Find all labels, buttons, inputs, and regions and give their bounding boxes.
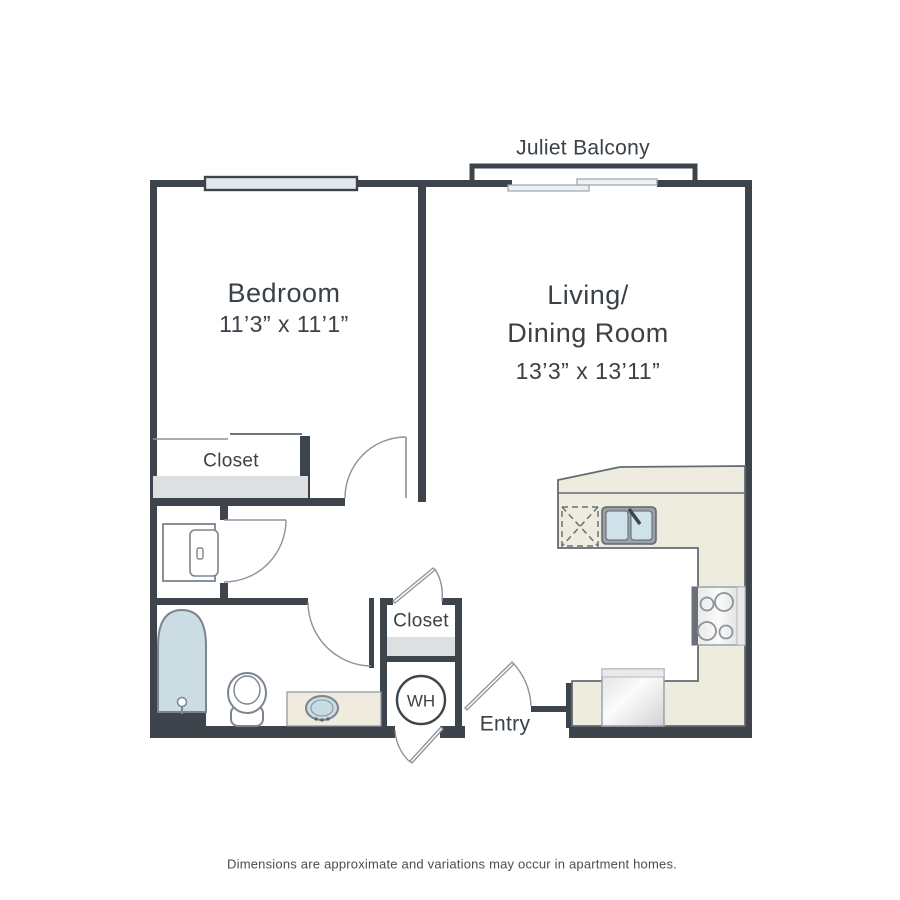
bedroom-door-arc <box>345 437 406 498</box>
hall-closet-door <box>393 568 442 603</box>
wall-bottom-wh <box>440 726 465 738</box>
floor-plan-page: Juliet Balcony Bedroom 11’3” x 11’1” Liv… <box>0 0 900 900</box>
wall-closet-wh-divider <box>387 656 455 662</box>
wall-hall-closet-right <box>455 598 462 726</box>
washer-dryer-drum <box>190 530 218 576</box>
bathroom-door-arc <box>308 602 371 666</box>
juliet-balcony <box>472 166 695 191</box>
kitchen-sink-basin-left <box>606 511 628 540</box>
toilet <box>228 673 266 726</box>
wall-hall-closet-top-left <box>380 598 393 605</box>
kitchen <box>558 466 745 726</box>
wall-vanity-stub-bottom <box>220 583 228 598</box>
entry-door-arc <box>513 663 531 706</box>
stove-right-edge <box>737 587 745 645</box>
bedroom-closet-label: Closet <box>203 451 259 472</box>
water-heater-door-leaf <box>410 727 443 763</box>
stove-left-edge <box>692 587 698 645</box>
entry-door-leaf <box>465 662 514 710</box>
wall-bedroom-divider <box>418 187 426 502</box>
vanity-faucet-dot-left <box>314 717 317 720</box>
washer-dryer-handle <box>197 548 203 559</box>
vanity-room-door <box>224 520 286 582</box>
bedroom-door <box>345 437 406 498</box>
hall-closet-door-leaf <box>393 568 435 603</box>
bathtub <box>158 610 206 712</box>
bathroom <box>158 610 381 726</box>
living-dining-label-line2: Dining Room <box>507 318 669 348</box>
hall-closet-door-arc <box>435 569 442 601</box>
washer-dryer <box>163 524 218 581</box>
vanity-door-arc <box>224 520 286 582</box>
wall-left <box>150 180 157 738</box>
vanity-faucet-dot-mid <box>320 718 323 721</box>
hall-closet-door-panel <box>387 637 455 656</box>
living-dining-dimensions: 13’3” x 13’11” <box>516 358 661 384</box>
hall-closet <box>387 637 455 656</box>
wall-bottom-kitchen <box>569 726 752 738</box>
wall-top-right <box>657 180 752 187</box>
bathtub-faucet <box>178 698 187 707</box>
water-heater-door-arc <box>395 730 410 762</box>
wall-vanity-stub-top <box>220 506 228 520</box>
hall-closet-label: Closet <box>393 611 449 632</box>
bedroom-label: Bedroom <box>227 278 340 308</box>
entry-label: Entry <box>480 713 531 736</box>
stove <box>692 587 745 645</box>
wall-entry-threshold <box>531 706 571 712</box>
wall-bathroom-top <box>150 598 308 605</box>
living-dining-label-line1: Living/ <box>547 280 629 310</box>
juliet-balcony-label: Juliet Balcony <box>516 137 650 160</box>
wall-right <box>745 180 752 738</box>
floor-plan-canvas: Juliet Balcony Bedroom 11’3” x 11’1” Liv… <box>0 0 900 900</box>
wall-tub-block <box>150 712 206 728</box>
refrigerator-top-band <box>602 669 664 677</box>
bedroom-window <box>205 177 357 190</box>
disclaimer-text: Dimensions are approximate and variation… <box>227 857 677 872</box>
balcony-slider-lower <box>508 185 589 191</box>
balcony-slider-upper <box>577 179 657 185</box>
water-heater-door <box>395 727 443 763</box>
kitchen-sink <box>602 507 656 544</box>
entry-door <box>465 662 531 710</box>
vanity-faucet-dot-right <box>326 717 329 720</box>
refrigerator-body <box>602 669 664 726</box>
bedroom-closet-door-panel <box>153 476 308 498</box>
bathroom-door <box>308 598 374 668</box>
bathroom-door-leaf <box>369 598 374 668</box>
wall-bedroom-bottom <box>150 498 345 506</box>
refrigerator <box>602 669 664 726</box>
water-heater-label: WH <box>407 692 435 711</box>
bedroom-dimensions: 11’3” x 11’1” <box>219 311 349 337</box>
bathroom-vanity <box>287 692 381 726</box>
